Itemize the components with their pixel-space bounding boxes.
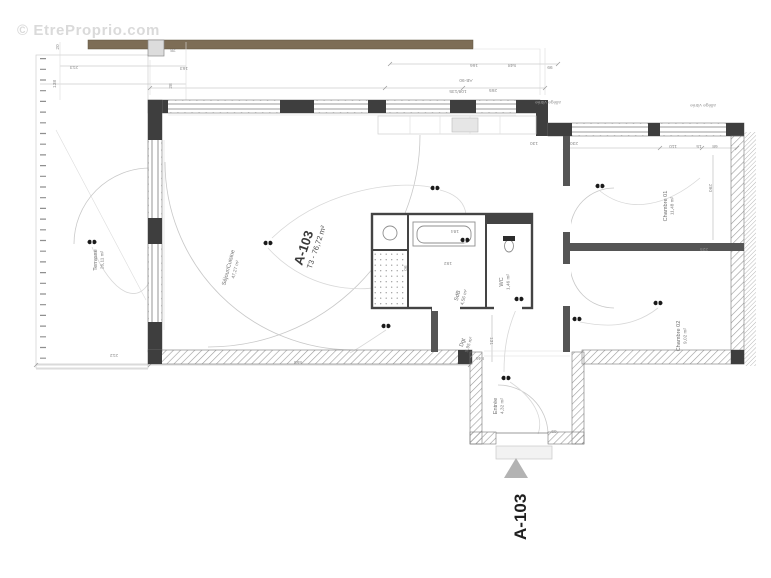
wood-deck-edge — [88, 40, 473, 49]
dimension-label: 212 — [110, 352, 118, 358]
ceiling-light-icon — [573, 316, 582, 323]
room-label-entree: Entrée — [493, 398, 499, 414]
dimension-label: 846 — [476, 355, 484, 361]
door-swing-arc — [570, 264, 614, 308]
dimension-label: 555 — [294, 359, 302, 365]
door-swing-arc — [570, 188, 614, 232]
ceiling-light-icon — [654, 300, 663, 307]
dimension-label: 138 — [52, 80, 58, 88]
dimension-label: 110 — [669, 143, 677, 149]
dimension-label: 131 — [488, 337, 494, 345]
column-marker — [148, 40, 164, 56]
ceiling-light-icon — [382, 323, 391, 330]
door-swing-arc — [74, 168, 150, 244]
dimension-label: 28 — [168, 83, 174, 89]
room-area-chambre-01: 11,48 m² — [670, 196, 675, 215]
dimension-label: 28 — [170, 47, 176, 53]
room-area-chambre-02: 9,02 m² — [683, 328, 688, 344]
dimension-label: 290 — [707, 184, 713, 192]
door-swing-arc — [165, 162, 353, 350]
dimension-label: 90 — [402, 265, 408, 271]
dimension-label: 69 — [551, 428, 557, 434]
dimension-label: 265 — [489, 87, 497, 93]
window-note-left: allège vitrée — [535, 99, 561, 105]
room-label-chambre-01: Chambre 01 — [663, 191, 669, 222]
room-label-wc: WC — [499, 277, 505, 286]
entrance-marker: A-103 — [504, 458, 530, 540]
dimension-label: 213 — [70, 64, 78, 70]
room-area-terrasse: 26,11 m² — [100, 250, 105, 269]
floor-plan: Terrasse 26,11 m² Séjour/Cuisine 47,27 m… — [0, 0, 771, 578]
ceiling-light-icon — [88, 239, 97, 246]
entrance-step — [496, 446, 552, 459]
dimension-label: 163 — [180, 65, 188, 71]
tiled-floor — [374, 252, 406, 306]
dimension-label: 99 — [547, 64, 553, 70]
dimension-label: 108/135 — [449, 88, 467, 94]
dimension-label: 192 — [444, 260, 452, 266]
kitchen-sink — [452, 118, 478, 132]
room-area-wc: 1,46 m² — [506, 274, 511, 290]
window-note-right: allège vitrée — [690, 102, 716, 108]
room-area-entree: 4,32 m² — [500, 398, 505, 414]
dimension-label: AB-90 — [459, 77, 473, 83]
dimension-label: 225 — [700, 246, 708, 252]
dimension-label: 548 — [508, 62, 516, 68]
ceiling-light-icon — [596, 183, 605, 190]
room-label-terrasse: Terrasse — [93, 249, 99, 270]
ceiling-light-icon — [431, 185, 440, 192]
dimension-label: 184 — [451, 228, 459, 234]
entrance-arrow-icon — [504, 458, 528, 478]
entrance-marker-label: A-103 — [511, 494, 530, 540]
dimension-label: 15 — [696, 143, 702, 149]
dimension-label: 230 — [570, 140, 578, 146]
ceiling-light-icon — [502, 375, 511, 382]
dimension-label: 68 — [712, 143, 718, 149]
floor-plan-page: © EtreProprio.com — [0, 0, 771, 578]
dimension-label: 166 — [470, 62, 478, 68]
ceiling-light-icon — [264, 240, 273, 247]
dimension-label: 20 — [55, 44, 61, 50]
dimension-label: 130 — [530, 140, 538, 146]
room-label-chambre-02: Chambre 02 — [676, 321, 682, 352]
